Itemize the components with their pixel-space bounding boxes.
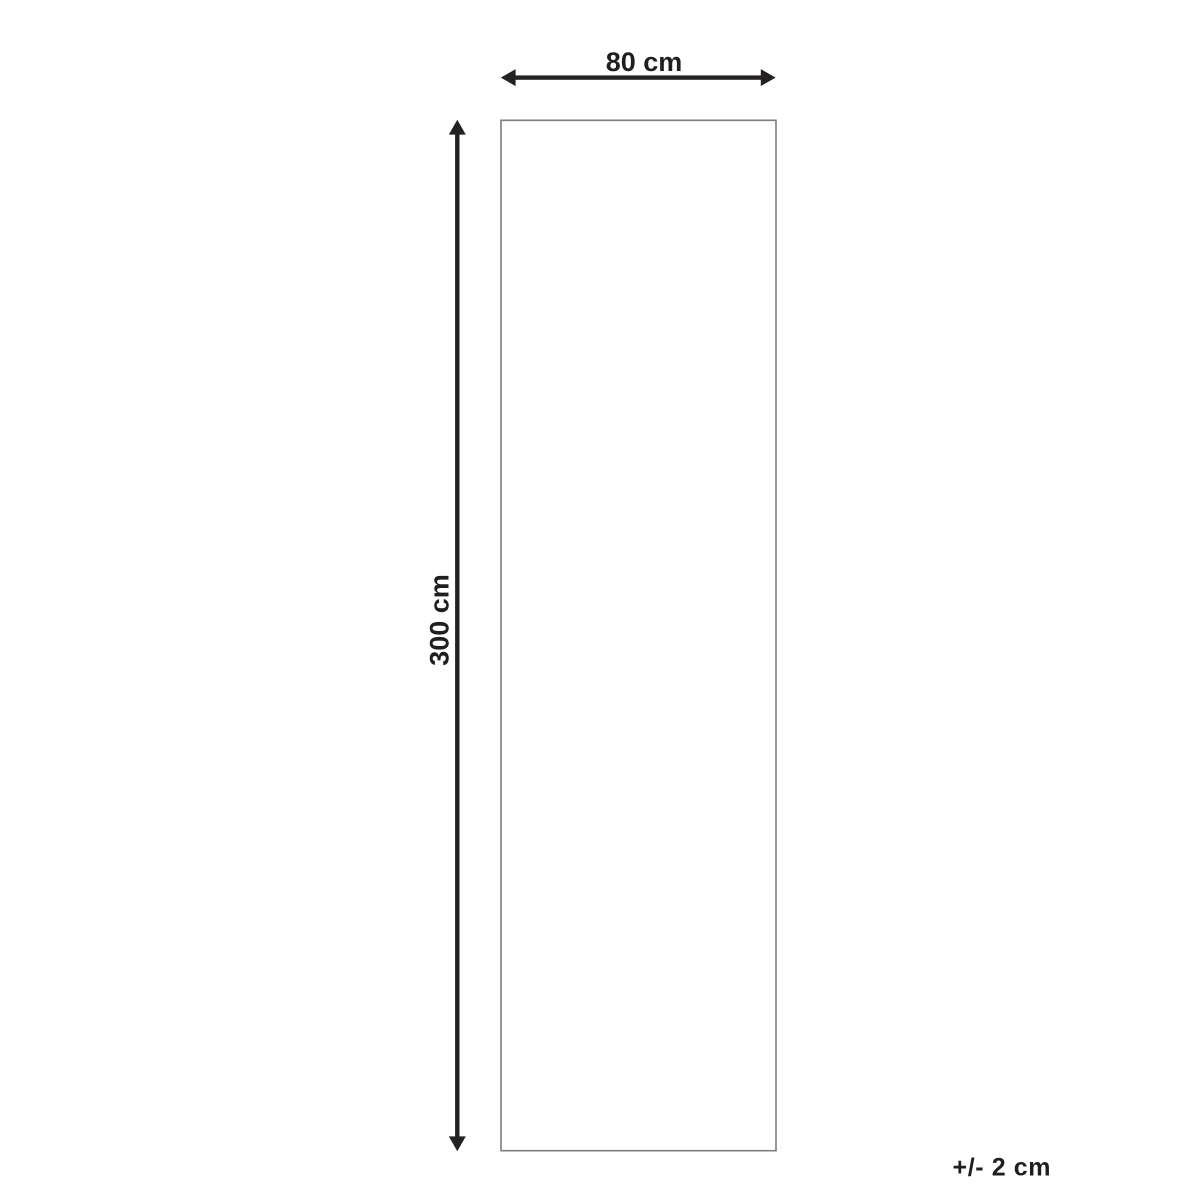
svg-text:300 cm: 300 cm	[425, 574, 455, 666]
svg-text:+/- 2 cm: +/- 2 cm	[953, 1154, 1052, 1182]
svg-text:80 cm: 80 cm	[606, 47, 683, 77]
